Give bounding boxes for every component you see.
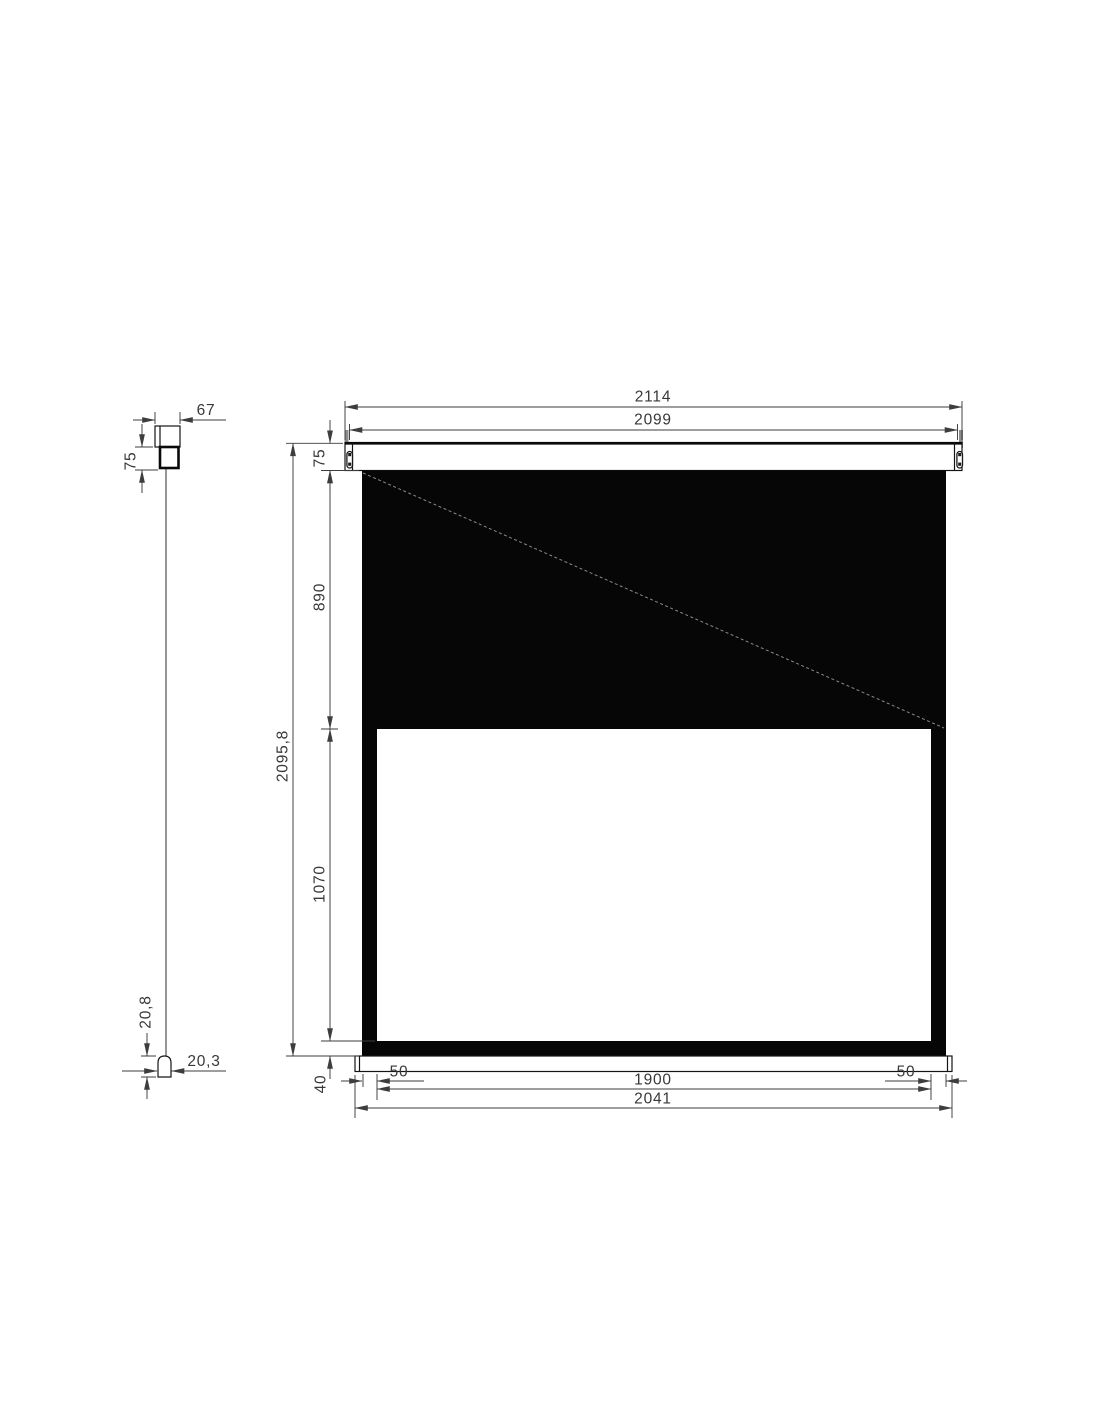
bracket-slot-left	[347, 452, 353, 469]
side-mount-bracket	[155, 426, 180, 447]
front-dimensions-left: 75 890 1070 40 2095,8	[275, 420, 376, 1093]
side-view	[155, 426, 180, 1077]
side-bottom-tip	[158, 1056, 171, 1077]
dim-label-50-left: 50	[390, 1064, 409, 1081]
dim-label-2095-8: 2095,8	[275, 730, 292, 782]
dim-label-890: 890	[312, 583, 329, 611]
dim-label-40: 40	[313, 1075, 330, 1094]
technical-drawing: 67 75 20,8 20,3	[0, 0, 1100, 1422]
dim-label-20-8: 20,8	[138, 995, 155, 1028]
weight-bar	[355, 1056, 952, 1072]
dim-label-1900: 1900	[634, 1072, 672, 1089]
ext-lines-67	[155, 412, 180, 424]
dim-label-1070: 1070	[312, 865, 329, 903]
bracket-slot-right	[957, 452, 963, 469]
dim-label-50-right: 50	[897, 1064, 916, 1081]
dim-label-20-3: 20,3	[187, 1053, 220, 1070]
dim-label-2041: 2041	[634, 1091, 672, 1108]
dim-label-2099: 2099	[634, 412, 672, 429]
dim-label-67: 67	[197, 402, 216, 419]
side-casing-tube	[160, 447, 179, 468]
dim-label-2114: 2114	[635, 389, 672, 406]
viewing-area-white	[377, 729, 931, 1041]
drawing-canvas: 67 75 20,8 20,3	[0, 0, 1100, 1422]
casing-bar	[345, 443, 962, 471]
front-view	[345, 430, 964, 1072]
dim-label-75: 75	[312, 449, 329, 468]
side-dimensions: 67 75 20,8 20,3	[122, 402, 226, 1099]
ext-lines-20-8	[141, 1056, 156, 1077]
front-dimensions-top: 2114 2099	[345, 389, 962, 441]
ext-lines-left	[286, 443, 375, 1056]
dim-label-75-side: 75	[123, 452, 140, 471]
